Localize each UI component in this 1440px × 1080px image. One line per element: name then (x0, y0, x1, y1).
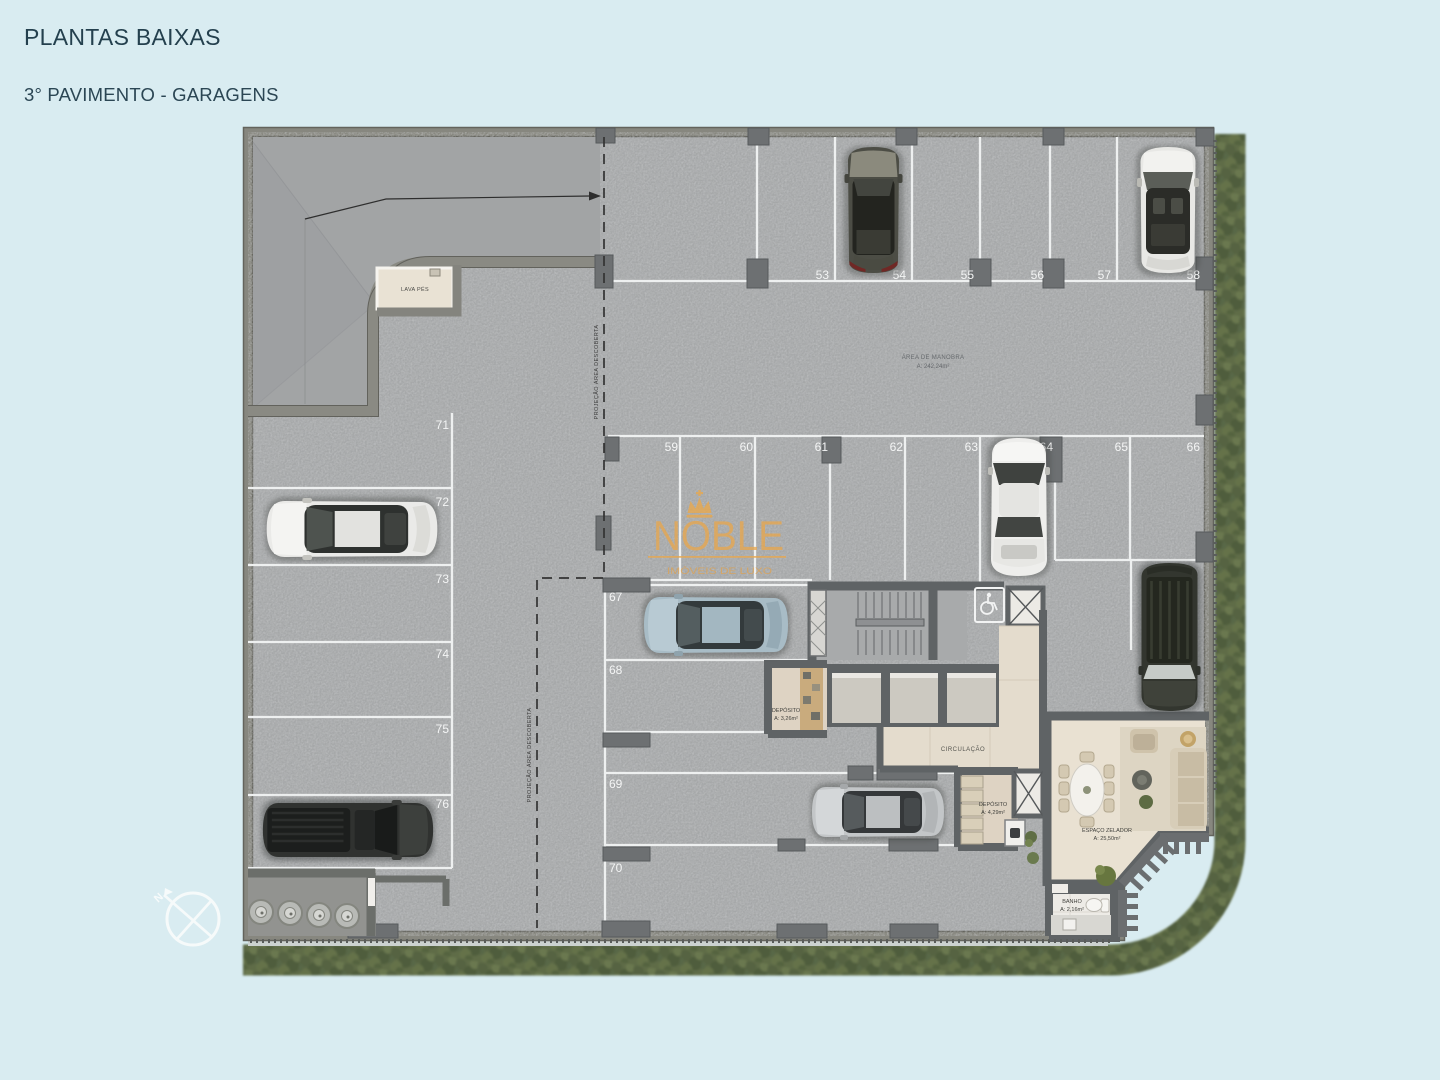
svg-text:IMÓVEIS DE LUXO: IMÓVEIS DE LUXO (667, 566, 772, 576)
svg-text:53: 53 (816, 268, 830, 282)
svg-text:76: 76 (436, 797, 450, 811)
svg-text:NOBLE: NOBLE (653, 512, 784, 559)
svg-text:A: 2,16m²: A: 2,16m² (1060, 907, 1084, 913)
svg-text:70: 70 (609, 861, 623, 875)
svg-text:DEPÓSITO: DEPÓSITO (772, 707, 801, 714)
svg-text:A: 4,29m²: A: 4,29m² (981, 810, 1005, 816)
svg-text:71: 71 (436, 418, 450, 432)
svg-text:61: 61 (815, 440, 829, 454)
svg-text:A: 242,24m²: A: 242,24m² (917, 364, 950, 370)
svg-text:72: 72 (436, 495, 450, 509)
svg-text:67: 67 (609, 590, 623, 604)
svg-text:68: 68 (609, 663, 623, 677)
svg-text:DEPÓSITO: DEPÓSITO (979, 801, 1008, 808)
svg-text:75: 75 (436, 722, 450, 736)
svg-text:73: 73 (436, 572, 450, 586)
svg-text:62: 62 (890, 440, 904, 454)
svg-text:A: 25,50m²: A: 25,50m² (1094, 836, 1121, 842)
svg-text:56: 56 (1031, 268, 1045, 282)
svg-text:74: 74 (436, 647, 450, 661)
svg-text:57: 57 (1098, 268, 1112, 282)
svg-text:BANHO: BANHO (1062, 899, 1082, 905)
svg-text:ESPAÇO ZELADOR: ESPAÇO ZELADOR (1082, 828, 1132, 834)
svg-text:55: 55 (961, 268, 975, 282)
svg-text:65: 65 (1115, 440, 1129, 454)
svg-text:66: 66 (1187, 440, 1201, 454)
svg-text:CIRCULAÇÃO: CIRCULAÇÃO (941, 746, 985, 753)
svg-text:59: 59 (665, 440, 679, 454)
svg-text:PROJEÇÃO ÁREA DESCOBERTA: PROJEÇÃO ÁREA DESCOBERTA (593, 325, 600, 420)
svg-text:PROJEÇÃO ÁREA DESCOBERTA: PROJEÇÃO ÁREA DESCOBERTA (526, 708, 533, 803)
svg-text:63: 63 (965, 440, 979, 454)
svg-text:LAVA PÉS: LAVA PÉS (401, 286, 429, 293)
svg-text:69: 69 (609, 777, 623, 791)
svg-text:ÁREA DE MANOBRA: ÁREA DE MANOBRA (902, 354, 965, 361)
svg-text:60: 60 (740, 440, 754, 454)
svg-text:A: 3,26m²: A: 3,26m² (774, 716, 798, 722)
